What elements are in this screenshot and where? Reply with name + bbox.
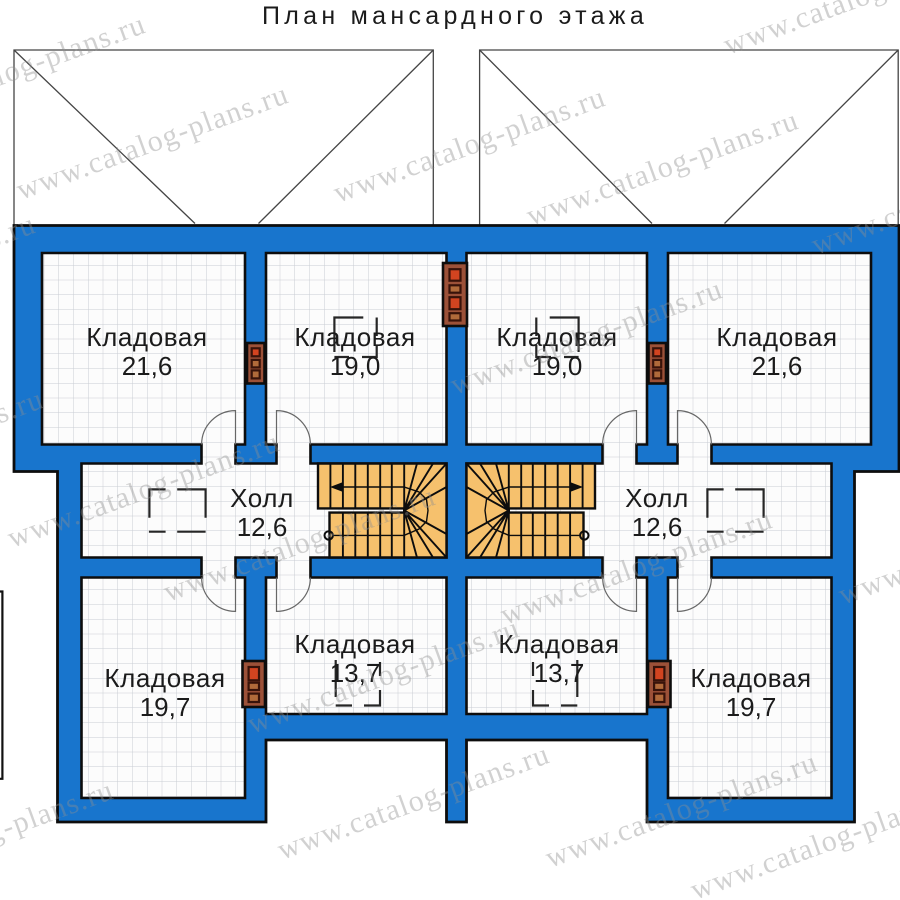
svg-text:19,7: 19,7 [140,692,191,722]
svg-text:Кладовая: Кладовая [294,322,415,352]
svg-text:Кладовая: Кладовая [690,663,811,693]
svg-text:21,6: 21,6 [752,351,803,381]
svg-text:Кладовая: Кладовая [86,322,207,352]
svg-text:План мансардного этажа: План мансардного этажа [262,2,648,30]
svg-text:Холл: Холл [625,483,689,513]
svg-text:19,0: 19,0 [330,351,381,381]
svg-text:Кладовая: Кладовая [716,322,837,352]
svg-text:13,7: 13,7 [534,658,585,688]
svg-text:19,7: 19,7 [726,692,777,722]
svg-text:Холл: Холл [230,483,294,513]
svg-text:Кладовая: Кладовая [104,663,225,693]
svg-text:21,6: 21,6 [122,351,173,381]
